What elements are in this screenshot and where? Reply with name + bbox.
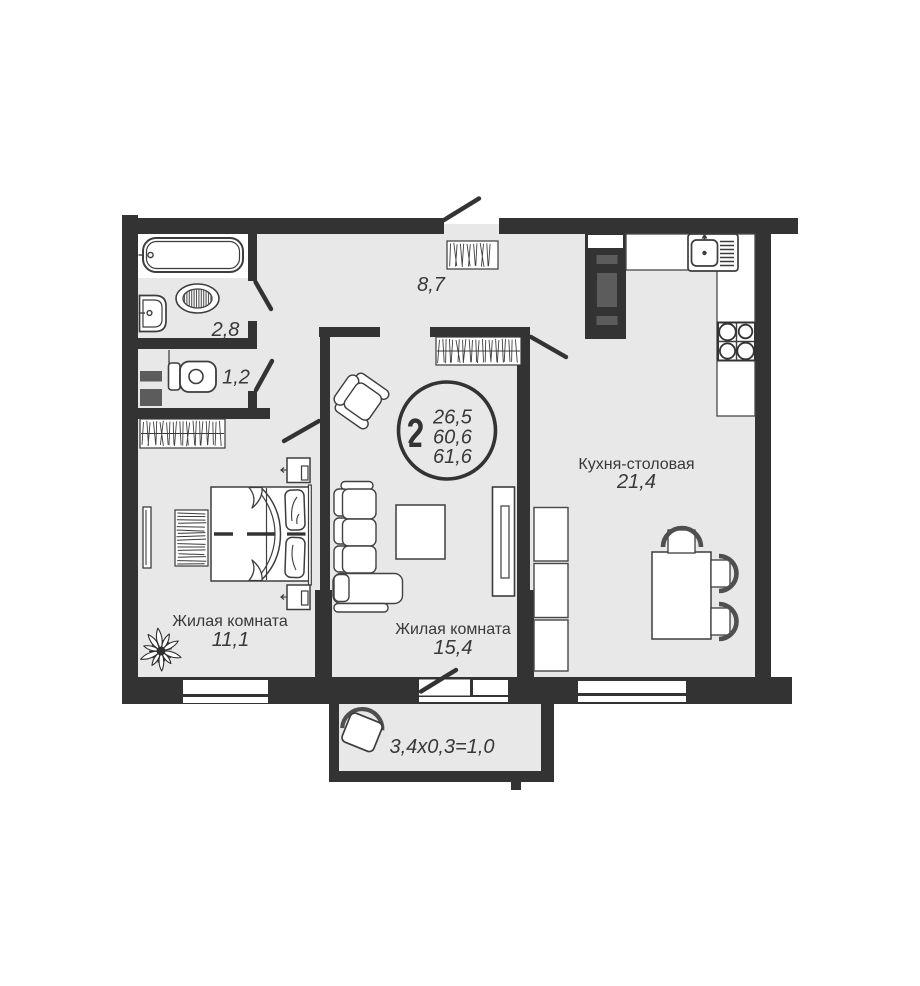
svg-text:61,6: 61,6 <box>433 446 473 468</box>
svg-text:26,5: 26,5 <box>432 407 473 429</box>
svg-text:11,1: 11,1 <box>212 629 249 651</box>
svg-text:60,6: 60,6 <box>433 426 473 448</box>
svg-text:Жилая комната: Жилая комната <box>395 621 511 638</box>
svg-text:Жилая комната: Жилая комната <box>172 613 288 630</box>
svg-text:15,4: 15,4 <box>434 637 473 659</box>
svg-text:2,8: 2,8 <box>211 319 240 341</box>
svg-text:3,4x0,3=1,0: 3,4x0,3=1,0 <box>389 736 494 758</box>
svg-text:21,4: 21,4 <box>616 471 656 493</box>
svg-text:8,7: 8,7 <box>417 274 446 296</box>
svg-text:1,2: 1,2 <box>222 367 250 389</box>
